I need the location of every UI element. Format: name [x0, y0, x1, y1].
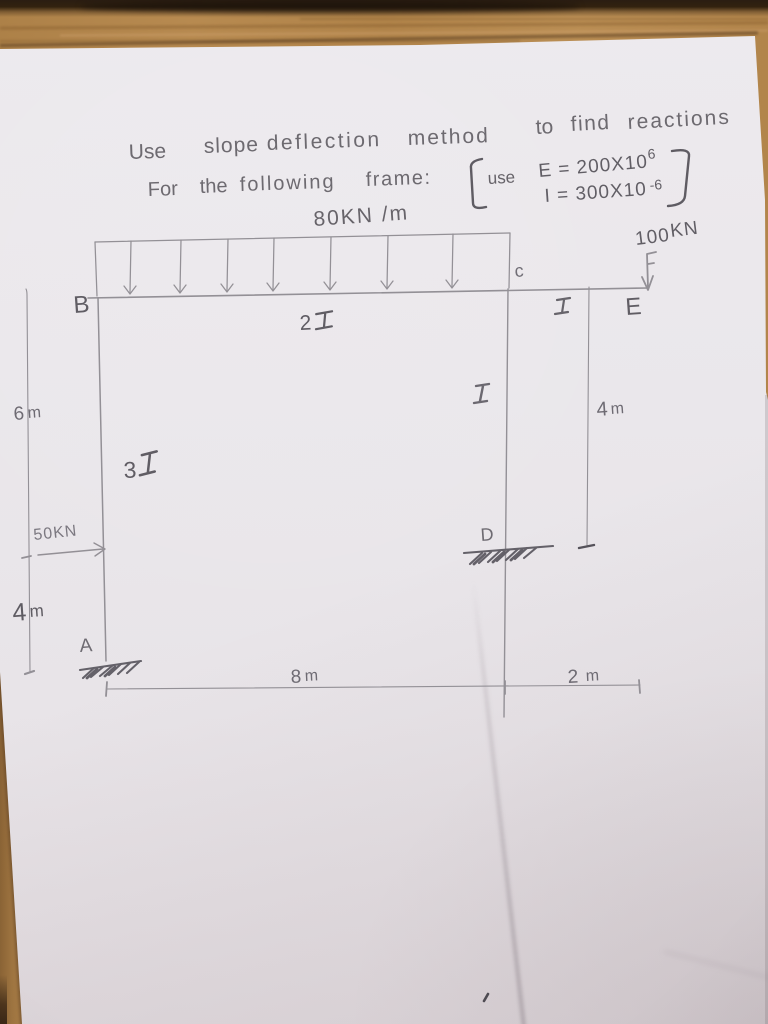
svg-text:6: 6: [13, 403, 25, 425]
svg-text:100: 100: [634, 225, 671, 250]
svg-text:the: the: [199, 175, 228, 198]
svg-text:m: m: [610, 400, 624, 418]
svg-text:4: 4: [596, 398, 609, 421]
svg-text:8: 8: [290, 666, 302, 688]
svg-text:method: method: [407, 124, 490, 150]
svg-text:KN: KN: [669, 218, 700, 242]
svg-text:use: use: [487, 168, 515, 188]
svg-text:reactions: reactions: [627, 106, 731, 134]
svg-text:following: following: [239, 171, 336, 196]
svg-text:6: 6: [647, 145, 656, 162]
svg-text:2: 2: [567, 666, 579, 688]
svg-text:frame:: frame:: [365, 167, 431, 191]
svg-text:80KN /m: 80KN /m: [313, 201, 410, 231]
svg-text:I = 300X10: I = 300X10: [544, 179, 648, 207]
svg-text:m: m: [585, 667, 599, 685]
svg-text:E = 200X10: E = 200X10: [538, 151, 649, 181]
svg-text:E: E: [625, 293, 643, 321]
svg-text:to: to: [535, 115, 554, 139]
svg-text:50KN: 50KN: [33, 522, 79, 544]
svg-text:D: D: [480, 524, 494, 545]
svg-text:A: A: [79, 635, 93, 657]
svg-text:deflection: deflection: [266, 128, 382, 155]
svg-text:Use: Use: [128, 140, 166, 164]
svg-text:m: m: [27, 404, 41, 422]
svg-text:find: find: [570, 111, 611, 136]
svg-text:B: B: [73, 291, 91, 319]
svg-text:m: m: [29, 601, 44, 621]
svg-text:For: For: [147, 178, 178, 201]
svg-text:2: 2: [299, 311, 312, 335]
svg-text:c: c: [514, 260, 524, 281]
svg-text:4: 4: [11, 598, 27, 627]
svg-text:m: m: [304, 667, 318, 685]
svg-text:3: 3: [123, 456, 137, 483]
svg-text:slope: slope: [203, 133, 259, 158]
svg-text:-6: -6: [649, 176, 663, 193]
